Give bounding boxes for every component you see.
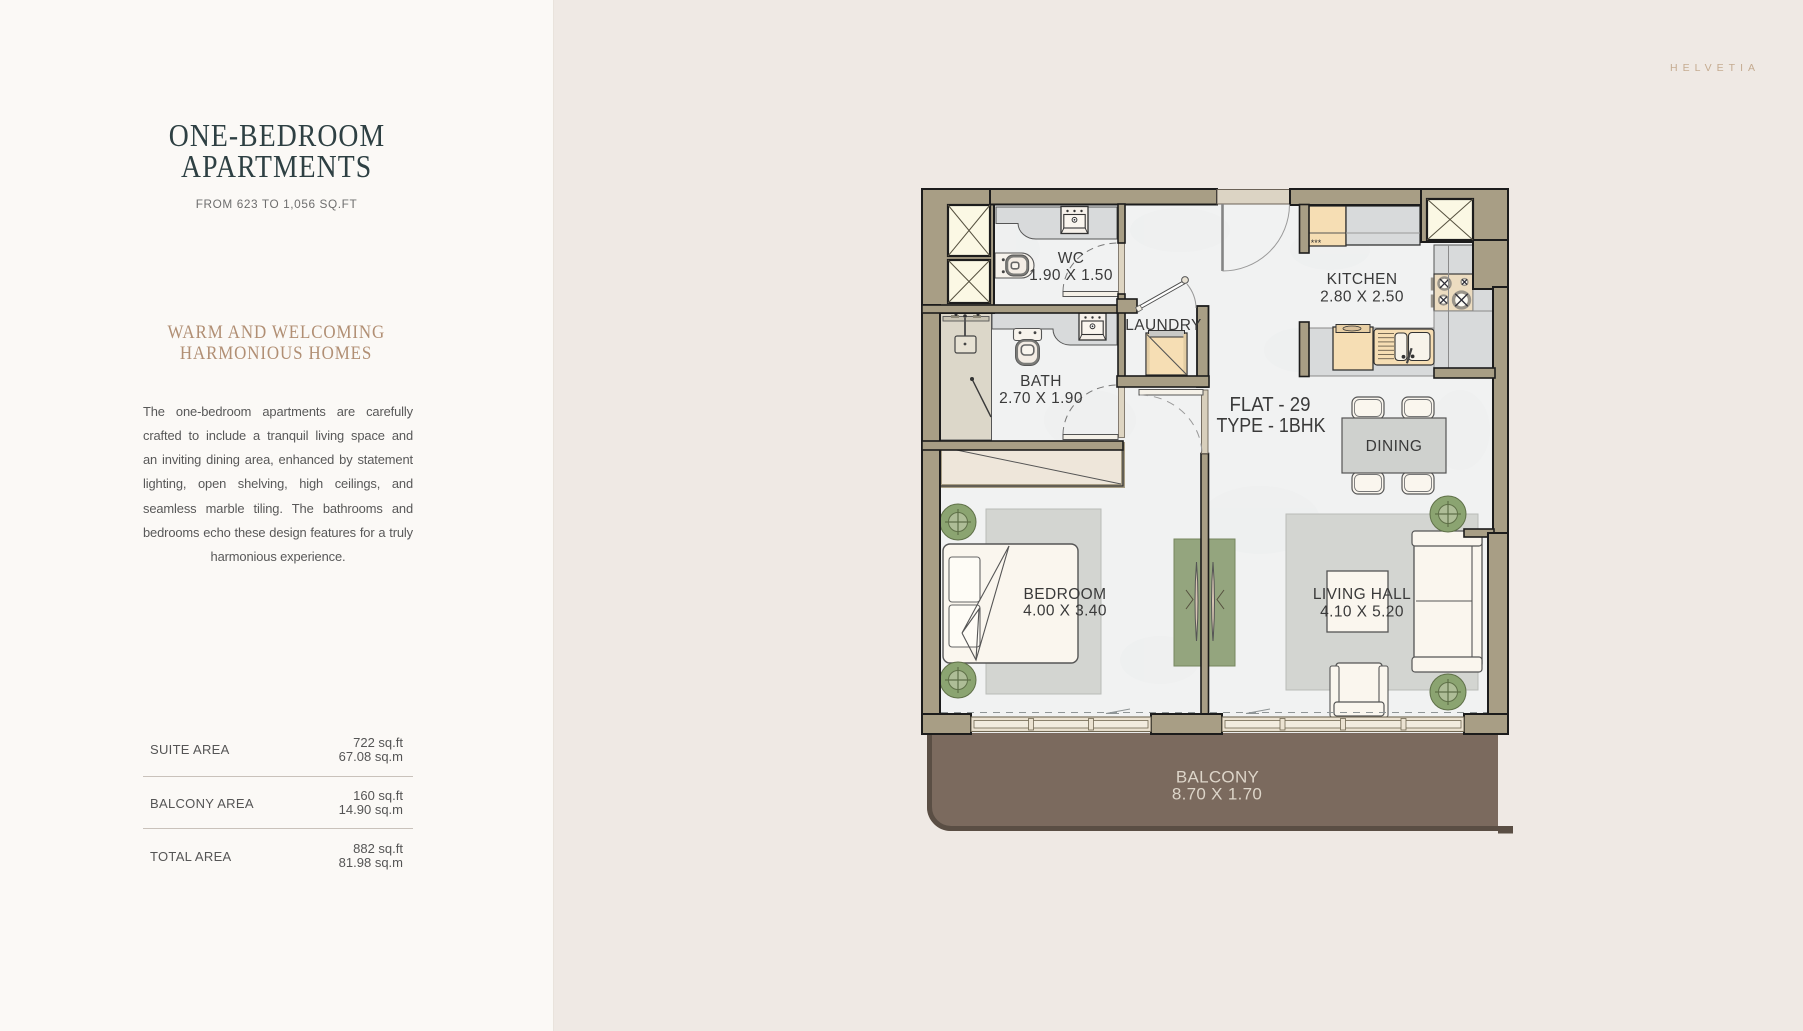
svg-text:LAUNDRY: LAUNDRY bbox=[1125, 317, 1202, 334]
svg-text:1.90 X 1.50: 1.90 X 1.50 bbox=[1029, 267, 1113, 284]
svg-text:FLAT - 29: FLAT - 29 bbox=[1230, 394, 1311, 416]
svg-text:BEDROOM: BEDROOM bbox=[1024, 586, 1107, 603]
svg-text:***: *** bbox=[1311, 238, 1322, 248]
svg-text:LIVING HALL: LIVING HALL bbox=[1313, 586, 1411, 603]
svg-text:4.10 X 5.20: 4.10 X 5.20 bbox=[1320, 604, 1404, 621]
svg-text:DINING: DINING bbox=[1366, 438, 1423, 455]
svg-text:TYPE - 1BHK: TYPE - 1BHK bbox=[1217, 415, 1327, 437]
svg-text:WC: WC bbox=[1058, 250, 1085, 267]
svg-text:2.70 X 1.90: 2.70 X 1.90 bbox=[999, 390, 1083, 407]
svg-text:2.80 X 2.50: 2.80 X 2.50 bbox=[1320, 289, 1404, 306]
svg-text:8.70 X 1.70: 8.70 X 1.70 bbox=[1172, 785, 1262, 804]
svg-text:BATH: BATH bbox=[1020, 373, 1062, 390]
svg-text:KITCHEN: KITCHEN bbox=[1327, 271, 1398, 288]
svg-text:4.00 X 3.40: 4.00 X 3.40 bbox=[1023, 603, 1107, 620]
